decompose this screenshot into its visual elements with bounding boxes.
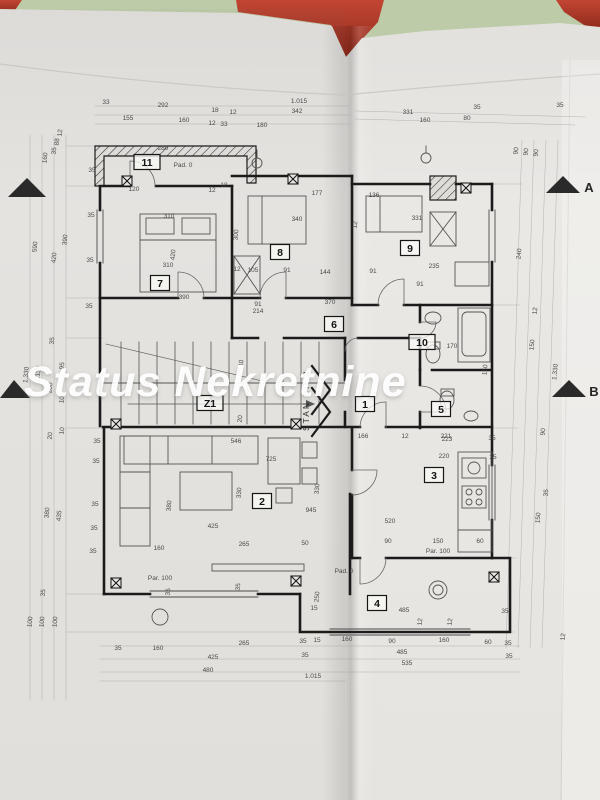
dimension-label: 33 <box>220 121 228 128</box>
dimension-label: 150 <box>482 364 490 376</box>
dimension-label: 35 <box>92 458 100 465</box>
room-number: 6 <box>331 319 337 331</box>
dimension-label: 35 <box>235 583 243 591</box>
dimension-label: 35 <box>505 653 513 660</box>
dimension-label: 80 <box>463 115 471 122</box>
room-number: 4 <box>374 598 380 610</box>
room-number: 8 <box>277 247 283 259</box>
dimension-label: 91 <box>254 301 262 308</box>
room-label-6: 6 <box>325 317 344 332</box>
dimension-label: 18 <box>211 107 219 114</box>
dimension-label: 1.330 <box>551 363 559 380</box>
dimension-label: 35 <box>556 102 564 109</box>
dimension-label: 480 <box>203 667 214 674</box>
dimension-label: Pad. 0 <box>335 568 354 575</box>
dimension-label: 180 <box>257 122 268 129</box>
dimension-label: 105 <box>248 267 259 274</box>
dimension-label: 35 <box>90 525 98 532</box>
dimension-label: 370 <box>325 299 336 306</box>
room-number: 1 <box>362 399 368 411</box>
dimension-label: 590 <box>32 241 40 253</box>
dimension-label: 240 <box>516 248 524 260</box>
dimension-label: 90 <box>523 148 531 156</box>
dimension-label: 60 <box>484 639 492 646</box>
dimension-label: 12 <box>208 187 216 194</box>
dimension-label: 380 <box>44 507 52 519</box>
dimension-label: 945 <box>306 507 317 514</box>
dimension-label: 390 <box>62 234 70 246</box>
dimension-label: 331 <box>403 109 414 116</box>
dimension-label: 60 <box>476 538 484 545</box>
room-number: 3 <box>431 470 437 482</box>
dimension-label: 100 <box>39 616 47 628</box>
dimension-label: 160 <box>42 152 50 164</box>
dimension-label: 160 <box>154 545 165 552</box>
dimension-label: 12 <box>401 433 409 440</box>
dimension-label: 35 <box>473 104 481 111</box>
room-number: 7 <box>157 278 163 290</box>
dimension-label: 425 <box>208 523 219 530</box>
dimension-label: 35 <box>40 589 48 597</box>
dimension-label: 35 <box>543 489 551 497</box>
room-number: 9 <box>407 243 413 255</box>
dimension-label: 330 <box>236 487 244 499</box>
dimension-label: 110 <box>238 359 246 370</box>
dimension-label: 12 <box>233 266 241 273</box>
dimension-label: 100 <box>52 616 60 628</box>
dimension-label: 100 <box>59 392 67 404</box>
dimension-label: 12 <box>447 618 455 626</box>
room-label-9: 9 <box>401 241 420 256</box>
room-label-10: 10 <box>409 335 435 350</box>
under-page <box>562 60 600 800</box>
room-label-7: 7 <box>151 276 170 291</box>
dimension-label: 20 <box>47 432 55 440</box>
room-label-4: 4 <box>368 596 387 611</box>
dimension-label: Par. 100 <box>426 548 451 555</box>
paper-sheet <box>0 9 600 800</box>
dimension-label: 100 <box>27 616 35 628</box>
dimension-label: 35 <box>301 652 309 659</box>
dimension-label: 120 <box>129 186 140 193</box>
dimension-label: 35 <box>489 454 497 461</box>
dimension-label: 546 <box>231 438 242 445</box>
dimension-label: 35 <box>86 257 94 264</box>
left-page-shade <box>0 9 345 800</box>
room-number: 11 <box>141 157 152 169</box>
photo-scene: STAN BR 3 3329218121.0153421551601233180… <box>0 0 600 800</box>
dimension-label: 160 <box>420 117 431 124</box>
dimension-label: 342 <box>292 108 303 115</box>
section-letter: B <box>589 384 598 399</box>
dimension-label: 35 <box>49 337 57 345</box>
dimension-label: 35 <box>91 501 99 508</box>
dimension-label: 390 <box>179 294 190 301</box>
shaft-hatch <box>430 176 456 200</box>
dimension-label: 160 <box>153 645 164 652</box>
dimension-label: 90 <box>513 147 521 155</box>
dimension-label: 330 <box>314 483 322 495</box>
dimension-label: 35 <box>501 608 509 615</box>
dimension-label: 725 <box>266 456 277 463</box>
dimension-label: 420 <box>51 252 59 264</box>
dimension-label: 12 <box>229 109 237 116</box>
dimension-label: 292 <box>158 102 169 109</box>
room-label-Z1: Z1 <box>197 396 223 411</box>
room-number: Z1 <box>204 398 216 410</box>
dimension-label: 265 <box>239 640 250 647</box>
dimension-label: 310 <box>164 213 175 220</box>
dimension-label: 35 <box>88 167 96 174</box>
dimension-label: 12 <box>208 120 216 127</box>
dimension-label: 144 <box>320 269 331 276</box>
dimension-label: 1.015 <box>305 673 322 680</box>
dimension-label: 90 <box>540 428 548 436</box>
room-label-11: 11 <box>134 155 160 170</box>
dimension-label: 15 <box>313 637 321 644</box>
dimension-label: 35 <box>114 645 122 652</box>
dimension-label: 235 <box>429 263 440 270</box>
room-label-5: 5 <box>432 402 451 417</box>
room-label-2: 2 <box>253 494 272 509</box>
dimension-label: 20 <box>237 415 245 423</box>
dimension-label: 435 <box>56 510 64 522</box>
dimension-label: 35 <box>165 588 173 596</box>
dimension-label: 150 <box>535 512 543 524</box>
room-label-8: 8 <box>271 245 290 260</box>
dimension-label: 90 <box>533 149 541 157</box>
room-label-3: 3 <box>425 468 444 483</box>
dimension-label: 250 <box>314 591 322 603</box>
dimension-label: 485 <box>397 649 408 656</box>
dimension-label: 90 <box>388 638 396 645</box>
dimension-label: 535 <box>402 660 413 667</box>
room-number: 2 <box>259 496 265 508</box>
dimension-label: Par. 100 <box>148 575 173 582</box>
dimension-label: 200 <box>47 382 55 394</box>
dimension-label: 331 <box>412 215 423 222</box>
dimension-label: 12 <box>352 221 360 229</box>
dimension-label: 35 <box>85 303 93 310</box>
dimension-label: 166 <box>358 433 369 440</box>
dimension-label: 12 <box>417 618 425 626</box>
dimension-label: 35 <box>93 438 101 445</box>
dimension-label: 223 <box>442 436 453 443</box>
dimension-label: 18 <box>220 182 228 189</box>
dimension-label: 33 <box>102 99 110 106</box>
dimension-label: 220 <box>439 453 450 460</box>
dimension-label: 485 <box>399 607 410 614</box>
dimension-label: 1.330 <box>22 366 30 383</box>
dimension-label: 136 <box>369 192 380 199</box>
dimension-label: 95 <box>59 362 67 370</box>
dimension-label: 280 <box>158 145 169 152</box>
dimension-label: 35 <box>504 640 512 647</box>
dimension-label: 1.015 <box>291 98 308 105</box>
dimension-label: 150 <box>529 339 537 351</box>
dimension-label: 35 <box>51 147 59 155</box>
dimension-label: 35 <box>87 212 95 219</box>
apartment-number-label: STAN BR 3 <box>301 370 311 431</box>
dimension-label: 90 <box>384 538 392 545</box>
dimension-label: 12 <box>532 307 540 315</box>
dimension-label: 155 <box>123 115 134 122</box>
dimension-label: 1.130 <box>34 365 42 382</box>
dimension-label: 10 <box>59 427 67 435</box>
room-number: 5 <box>438 404 444 416</box>
dimension-label: 170 <box>447 343 458 350</box>
dimension-label: Pad. 0 <box>174 162 193 169</box>
dimension-label: 160 <box>179 117 190 124</box>
section-letter: A <box>584 180 594 195</box>
dimension-label: 15 <box>310 605 318 612</box>
dimension-label: 91 <box>283 267 291 274</box>
dimension-label: 420 <box>170 249 178 261</box>
dimension-label: 35 <box>89 548 97 555</box>
dimension-label: 35 <box>488 435 496 442</box>
dimension-label: 380 <box>166 500 174 512</box>
dimension-label: 214 <box>253 308 264 315</box>
dimension-label: 520 <box>385 518 396 525</box>
dimension-label: 50 <box>301 540 309 547</box>
dimension-label: 88 <box>54 138 62 146</box>
dimension-label: 265 <box>239 541 250 548</box>
dimension-label: 91 <box>369 268 377 275</box>
dimension-label: 12 <box>57 129 65 137</box>
dimension-label: 160 <box>439 637 450 644</box>
dimension-label: 310 <box>163 262 174 269</box>
dimension-label: 300 <box>233 229 241 241</box>
floor-plan-photo: STAN BR 3 3329218121.0153421551601233180… <box>0 0 600 800</box>
room-label-1: 1 <box>356 397 375 412</box>
dimension-label: 160 <box>342 636 353 643</box>
dimension-label: 150 <box>433 538 444 545</box>
dimension-label: 425 <box>208 654 219 661</box>
dimension-label: 12 <box>560 633 568 641</box>
dimension-label: 177 <box>312 190 323 197</box>
room-number: 10 <box>416 337 428 349</box>
dimension-label: 35 <box>299 638 307 645</box>
dimension-label: 91 <box>416 281 424 288</box>
dimension-label: 340 <box>292 216 303 223</box>
